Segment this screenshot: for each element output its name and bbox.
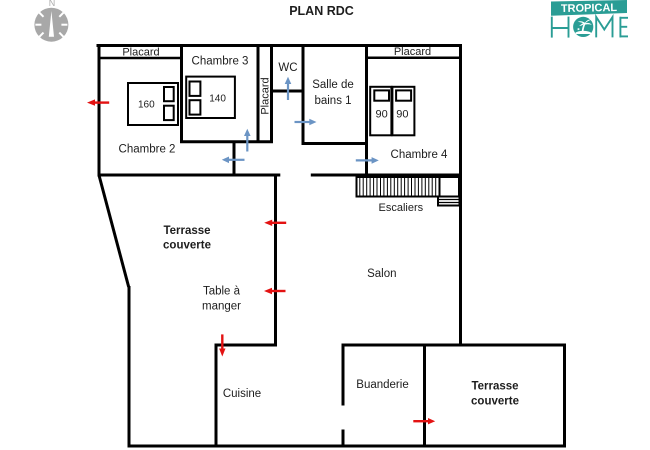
svg-text:Placard: Placard: [394, 46, 431, 58]
svg-text:couverte: couverte: [471, 396, 519, 408]
svg-text:Cuisine: Cuisine: [223, 388, 261, 400]
svg-text:140: 140: [209, 93, 226, 104]
svg-text:Table à: Table à: [203, 286, 241, 298]
svg-text:PLAN RDC: PLAN RDC: [289, 4, 354, 18]
svg-text:Chambre 3: Chambre 3: [192, 56, 249, 68]
svg-text:TROPICAL: TROPICAL: [561, 2, 618, 15]
svg-text:Placard: Placard: [122, 47, 159, 59]
svg-text:Salle de: Salle de: [312, 79, 354, 91]
svg-text:bains 1: bains 1: [314, 95, 351, 107]
svg-text:manger: manger: [202, 301, 241, 313]
svg-text:160: 160: [138, 99, 155, 110]
svg-text:Salon: Salon: [367, 268, 396, 280]
svg-text:90: 90: [375, 109, 387, 121]
svg-text:couverte: couverte: [163, 240, 211, 252]
svg-text:Placard: Placard: [260, 77, 272, 114]
svg-text:Terrasse: Terrasse: [471, 381, 518, 393]
svg-text:90: 90: [396, 109, 408, 121]
svg-text:Chambre 2: Chambre 2: [119, 144, 176, 156]
svg-text:N: N: [49, 0, 56, 8]
svg-text:Chambre 4: Chambre 4: [391, 149, 448, 161]
svg-text:Buanderie: Buanderie: [356, 379, 408, 391]
svg-text:Terrasse: Terrasse: [163, 225, 210, 237]
svg-text:Escaliers: Escaliers: [378, 202, 423, 214]
svg-text:WC: WC: [278, 62, 297, 74]
